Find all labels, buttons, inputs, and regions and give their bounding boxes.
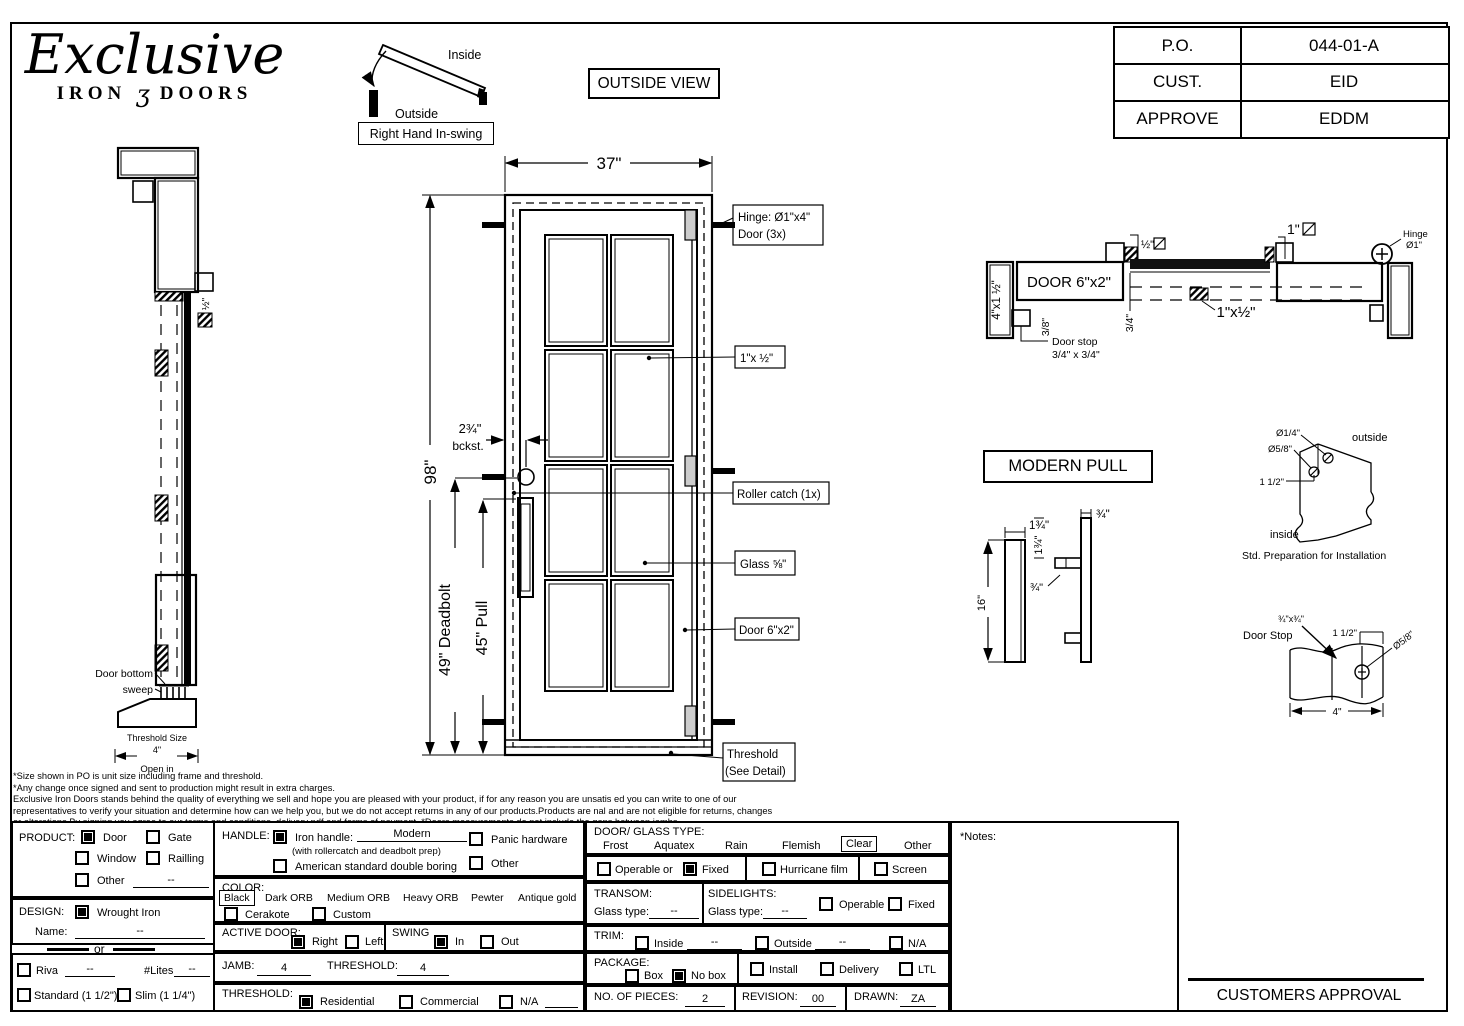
checkbox-sl-operable[interactable] — [819, 897, 833, 911]
active-door-box: ACTIVE DOOR: Right Left SWING In Out — [213, 923, 585, 952]
design-name-label: Name: — [35, 926, 67, 938]
elev-width-dim: 37" — [597, 154, 622, 173]
threshold-dim-value[interactable]: 4 — [397, 961, 449, 976]
doorstop-label-1: Door stop — [1052, 336, 1098, 348]
option-right: Right — [312, 936, 338, 948]
side-half-dim: ½" — [200, 297, 212, 310]
glass-type-label: DOOR/ GLASS TYPE: — [594, 826, 704, 838]
package-label: PACKAGE: — [594, 957, 649, 969]
checkbox-door[interactable] — [81, 830, 95, 844]
fit-box: Operable or Fixed Hurricane film Screen — [585, 855, 950, 882]
hinge-note-1: Hinge — [1403, 229, 1428, 240]
threshold-size-label: Threshold Size — [127, 733, 187, 743]
or-divider-line — [113, 948, 155, 951]
checkbox-railling[interactable] — [146, 851, 160, 865]
modern-pull-title: MODERN PULL — [1008, 457, 1127, 476]
option-trim-na: N/A — [908, 938, 926, 950]
option-dark-orb[interactable]: Dark ORB — [265, 892, 313, 904]
modern-pull-detail: 1¾" ¾" 1¾" ¾" 16" — [980, 487, 1180, 682]
option-custom: Custom — [333, 909, 371, 921]
disclaimer-line: *Any change once signed and sent to prod… — [13, 783, 772, 795]
glass-type-box: DOOR/ GLASS TYPE: Frost Aquatex Rain Fle… — [585, 821, 950, 855]
checkbox-wrought-iron[interactable] — [75, 905, 89, 919]
threshold-size-value: 4" — [153, 745, 161, 755]
option-screen: Screen — [892, 864, 927, 876]
option-aquatex[interactable]: Aquatex — [654, 840, 694, 852]
pull-armoffset-dim: 1¾" — [1033, 535, 1045, 554]
revision-value[interactable]: 00 — [800, 992, 836, 1007]
revision-label: REVISION: — [742, 991, 798, 1003]
option-antique-gold[interactable]: Antique gold — [518, 892, 576, 904]
option-door: Door — [103, 832, 127, 844]
checkbox-riva[interactable] — [17, 963, 31, 977]
checkbox-ltl[interactable] — [899, 962, 913, 976]
elev-deadbolt-dim: 49" Deadbolt — [437, 583, 454, 676]
disclaimer-line: Exclusive Iron Doors stands behind the q… — [13, 794, 772, 806]
checkbox-gate[interactable] — [146, 830, 160, 844]
disclaimer-line: *Size shown in PO is unit size including… — [13, 771, 772, 783]
sweep-label-1: Door bottom — [95, 668, 153, 680]
pull-wleft-dim: 1¾" — [1029, 520, 1049, 532]
trim-outside-value[interactable]: -- — [815, 935, 870, 950]
backset-label: bckst. — [452, 439, 483, 453]
disclaimer: *Size shown in PO is unit size including… — [13, 771, 772, 829]
prep-d58: Ø5/8" — [1268, 444, 1292, 455]
checkbox-hurricane[interactable] — [762, 862, 776, 876]
sidelights-glass-label: Glass type: — [708, 906, 763, 918]
checkbox-trim-outside[interactable] — [755, 936, 769, 950]
cust-value: EID — [1240, 72, 1448, 92]
jamb-label: JAMB: — [222, 960, 254, 972]
transom-value[interactable]: -- — [649, 904, 699, 919]
riva-box: Riva -- #Lites -- Standard (1 1/2") Slim… — [11, 953, 215, 1012]
option-wrought-iron: Wrought Iron — [97, 907, 160, 919]
option-flemish[interactable]: Flemish — [782, 840, 821, 852]
bar-dim-label: 1"x½" — [1216, 304, 1255, 321]
disclaimer-line: representatives to verify your situation… — [13, 806, 772, 818]
option-na-threshold: N/A — [520, 996, 538, 1008]
elev-height-dim: 98" — [421, 460, 440, 485]
checkbox-trim-na[interactable] — [889, 936, 903, 950]
cust-label: CUST. — [1115, 72, 1240, 92]
checkbox-na-threshold[interactable] — [499, 995, 513, 1009]
po-table: P.O. 044-01-A CUST. EID APPROVE EDDM — [1113, 26, 1450, 139]
fit-or: or — [663, 864, 673, 876]
transom-label: TRANSOM: — [594, 888, 652, 900]
plan-section: 4"x1 ½" DOOR 6"x2" ½" 1" 1"x½" 3/4" 3/8"… — [980, 215, 1450, 375]
pull-height-dim: 16" — [976, 595, 988, 611]
notes-label: *Notes: — [960, 831, 996, 843]
logo-script: Exclusive — [22, 26, 287, 84]
d34-dim: 3/4" — [1124, 314, 1136, 333]
checkbox-custom[interactable] — [312, 907, 326, 921]
logo-doors: DOORS — [160, 83, 253, 105]
checkbox-operable[interactable] — [597, 862, 611, 876]
design-box: DESIGN: Wrought Iron Name: -- — [11, 898, 215, 945]
approve-value: EDDM — [1240, 109, 1448, 129]
threshold-dim-label: THRESHOLD: — [327, 960, 398, 972]
product-label: PRODUCT: — [19, 832, 75, 844]
checkbox-trim-inside[interactable] — [635, 936, 649, 950]
or-divider-line — [47, 948, 89, 951]
option-delivery: Delivery — [839, 964, 879, 976]
option-glass-other[interactable]: Other — [904, 840, 932, 852]
option-in: In — [455, 936, 464, 948]
prep-inside: inside — [1270, 529, 1299, 541]
checkbox-no-box[interactable] — [672, 969, 686, 983]
option-slim: Slim (1 1/4") — [135, 990, 195, 1002]
iron-handle-value[interactable]: Modern — [357, 827, 467, 842]
checkbox-screen[interactable] — [874, 862, 888, 876]
drawn-label: DRAWN: — [854, 991, 898, 1003]
swing-outside-label: Outside — [395, 107, 438, 121]
option-gate: Gate — [168, 832, 192, 844]
prep-outside: outside — [1352, 432, 1387, 444]
transom-box: TRANSOM: Glass type: -- SIDELIGHTS: Glas… — [585, 882, 950, 925]
checkbox-panic[interactable] — [469, 832, 483, 846]
option-frost[interactable]: Frost — [603, 840, 628, 852]
door-elevation: 37" 98" 49" Deadbolt 45" Pull 2¾" bckst. — [420, 150, 830, 790]
design-label: DESIGN: — [19, 906, 64, 918]
option-railling: Railling — [168, 853, 204, 865]
threshold-callout-1: Threshold — [727, 749, 778, 761]
active-door-label: ACTIVE DOOR: — [222, 927, 301, 939]
option-handle-other: Other — [491, 858, 519, 870]
option-window: Window — [97, 853, 136, 865]
checkbox-residential[interactable] — [299, 995, 313, 1009]
option-sl-operable: Operable — [839, 899, 884, 911]
prep-detail: Ø1/4" Ø5/8" 1 1/2" outside inside Std. P… — [1240, 418, 1455, 570]
logo-iron: IRON — [57, 83, 127, 105]
door-callout: Door 6"x2" — [739, 625, 794, 637]
design-name-value[interactable]: -- — [75, 924, 205, 939]
jamb-left-label: 4"x1 ½" — [991, 280, 1003, 320]
pull-armgap-dim: ¾" — [1030, 582, 1043, 594]
checkbox-american-boring[interactable] — [273, 859, 287, 873]
option-operable: Operable — [615, 864, 660, 876]
checkbox-in[interactable] — [434, 935, 448, 949]
prep-d112: 1 1/2" — [1259, 477, 1284, 488]
option-no-box: No box — [691, 970, 726, 982]
swing-inside-label: Inside — [448, 48, 481, 62]
doorstop-detail: ¾"x¾" Door Stop 1 1/2" Ø5/8" 4" — [1240, 598, 1455, 733]
trim-label: TRIM: — [594, 930, 624, 942]
option-rain[interactable]: Rain — [725, 840, 748, 852]
po-label: P.O. — [1115, 36, 1240, 56]
checkbox-slim[interactable] — [117, 988, 131, 1002]
sidelights-label: SIDELIGHTS: — [708, 888, 776, 900]
option-commercial: Commercial — [420, 996, 479, 1008]
package-box: PACKAGE: Box No box Install Delivery LTL — [585, 952, 950, 985]
pieces-box: NO. OF PIECES: 2 REVISION: 00 DRAWN: ZA — [585, 985, 950, 1012]
option-trim-outside: Outside — [774, 938, 812, 950]
product-box: PRODUCT: Door Gate Window Railling Other… — [11, 821, 215, 898]
roller-callout: Roller catch (1x) — [737, 489, 821, 501]
pieces-value[interactable]: 2 — [685, 992, 725, 1007]
prep-caption: Std. Preparation for Installation — [1242, 550, 1386, 562]
checkbox-cerakote[interactable] — [224, 907, 238, 921]
option-standard: Standard (1 1/2") — [34, 990, 117, 1002]
checkbox-standard[interactable] — [17, 988, 31, 1002]
hinge-plate-top — [685, 210, 696, 240]
hinge-note-2: Ø1" — [1406, 240, 1422, 251]
swing-diagram: Inside Outside — [350, 28, 500, 124]
product-other-value[interactable]: -- — [133, 873, 209, 888]
option-left: Left — [365, 936, 383, 948]
option-out: Out — [501, 936, 519, 948]
outside-view-label: OUTSIDE VIEW — [598, 75, 711, 93]
option-medium-orb[interactable]: Medium ORB — [327, 892, 390, 904]
sidelights-value[interactable]: -- — [763, 904, 807, 919]
option-panic: Panic hardware — [491, 834, 567, 846]
drawn-value[interactable]: ZA — [900, 992, 936, 1007]
checkbox-product-other[interactable] — [75, 873, 89, 887]
option-riva: Riva — [36, 965, 58, 977]
prep-d14: Ø1/4" — [1276, 428, 1300, 439]
hinge-plate-bot — [685, 706, 696, 736]
option-hurricane: Hurricane film — [780, 864, 848, 876]
handle-box: HANDLE: Iron handle: Modern (with roller… — [213, 821, 585, 877]
checkbox-package-box[interactable] — [625, 969, 639, 983]
option-trim-inside: Inside — [654, 938, 683, 950]
checkbox-left[interactable] — [345, 935, 359, 949]
lites-value[interactable]: -- — [174, 962, 210, 977]
trim-box: TRIM: Inside -- Outside -- N/A — [585, 925, 950, 952]
checkbox-commercial[interactable] — [399, 995, 413, 1009]
approval-label: CUSTOMERS APPROVAL — [1179, 987, 1439, 1005]
swing-caption: Right Hand In-swing — [370, 127, 483, 141]
door-spec-sheet: Exclusive IRON ʒ DOORS Inside Outside Ri… — [0, 0, 1464, 1026]
threshold-box: THRESHOLD: Residential Commercial N/A — [213, 983, 585, 1012]
approve-label: APPROVE — [1115, 109, 1240, 129]
option-package-box: Box — [644, 970, 663, 982]
checkbox-right[interactable] — [291, 935, 305, 949]
one-dim: 1" — [1287, 221, 1300, 237]
swing-label: SWING — [392, 927, 429, 939]
stop-size: ¾"x¾" — [1278, 614, 1304, 624]
option-clear[interactable]: Clear — [841, 836, 877, 852]
pull-wright-dim: ¾" — [1096, 509, 1110, 521]
elev-pull-dim: 45" Pull — [474, 601, 491, 656]
hinge-plate-mid — [685, 456, 696, 486]
option-heavy-orb[interactable]: Heavy ORB — [403, 892, 458, 904]
notes-box[interactable]: *Notes: — [950, 821, 1179, 1012]
lites-label: #Lites — [144, 965, 173, 977]
glass-callout: Glass ⅝" — [740, 559, 786, 571]
option-iron-handle: Iron handle: — [295, 832, 353, 844]
iron-handle-note: (with rollercatch and deadbolt prep) — [292, 846, 441, 857]
hinge-callout-1: Hinge: Ø1"x4" — [738, 212, 810, 224]
transom-glass-label: Glass type: — [594, 906, 649, 918]
threshold-label: THRESHOLD: — [222, 988, 293, 1000]
checkbox-handle-other[interactable] — [469, 856, 483, 870]
riva-value[interactable]: -- — [65, 962, 115, 977]
d38-dim: 3/8" — [1040, 318, 1052, 337]
checkbox-fixed[interactable] — [683, 862, 697, 876]
po-value: 044-01-A — [1240, 36, 1448, 56]
checkbox-install[interactable] — [750, 962, 764, 976]
stop-width-dim: 4" — [1332, 707, 1342, 718]
option-cerakote: Cerakote — [245, 909, 290, 921]
option-install: Install — [769, 964, 798, 976]
option-residential: Residential — [320, 996, 374, 1008]
option-pewter[interactable]: Pewter — [471, 892, 504, 904]
stop-d58: Ø5/8" — [1391, 629, 1417, 652]
option-fixed: Fixed — [702, 864, 729, 876]
jamb-value[interactable]: 4 — [257, 961, 311, 976]
hinge-callout-2: Door (3x) — [738, 229, 786, 241]
checkbox-out[interactable] — [480, 935, 494, 949]
threshold-na-value[interactable] — [545, 993, 578, 1008]
approval-area: CUSTOMERS APPROVAL — [1179, 821, 1448, 1012]
color-box: COLOR: Black Dark ORB Medium ORB Heavy O… — [213, 877, 585, 923]
option-ltl: LTL — [918, 964, 936, 976]
signature-line — [1188, 978, 1424, 981]
sweep-label-2: sweep — [123, 684, 154, 696]
handle-label: HANDLE: — [222, 830, 270, 842]
bar-callout: 1"x ½" — [740, 353, 773, 365]
doorstop-label-2: 3/4" x 3/4" — [1052, 349, 1100, 361]
checkbox-sl-fixed[interactable] — [888, 897, 902, 911]
half-dim: ½" — [1141, 239, 1154, 251]
option-american-boring: American standard double boring — [295, 861, 457, 873]
checkbox-delivery[interactable] — [820, 962, 834, 976]
backset-dim: 2¾" — [459, 421, 482, 436]
jamb-box: JAMB: 4 THRESHOLD: 4 — [213, 952, 585, 983]
logo-ornament-icon: ʒ — [136, 80, 150, 108]
pieces-label: NO. OF PIECES: — [594, 991, 678, 1003]
side-section-view: ½" Door bottom sweep Threshold Size 4" O… — [85, 140, 235, 785]
checkbox-iron-handle[interactable] — [273, 830, 287, 844]
door-section-label: DOOR 6"x2" — [1027, 274, 1111, 291]
checkbox-window[interactable] — [75, 851, 89, 865]
option-sl-fixed: Fixed — [908, 899, 935, 911]
stop-d112: 1 1/2" — [1332, 628, 1357, 639]
trim-inside-value[interactable]: -- — [687, 935, 742, 950]
option-product-other: Other — [97, 875, 125, 887]
logo: Exclusive IRON ʒ DOORS — [22, 26, 287, 108]
stop-label: Door Stop — [1243, 630, 1293, 642]
option-black[interactable]: Black — [219, 890, 255, 906]
